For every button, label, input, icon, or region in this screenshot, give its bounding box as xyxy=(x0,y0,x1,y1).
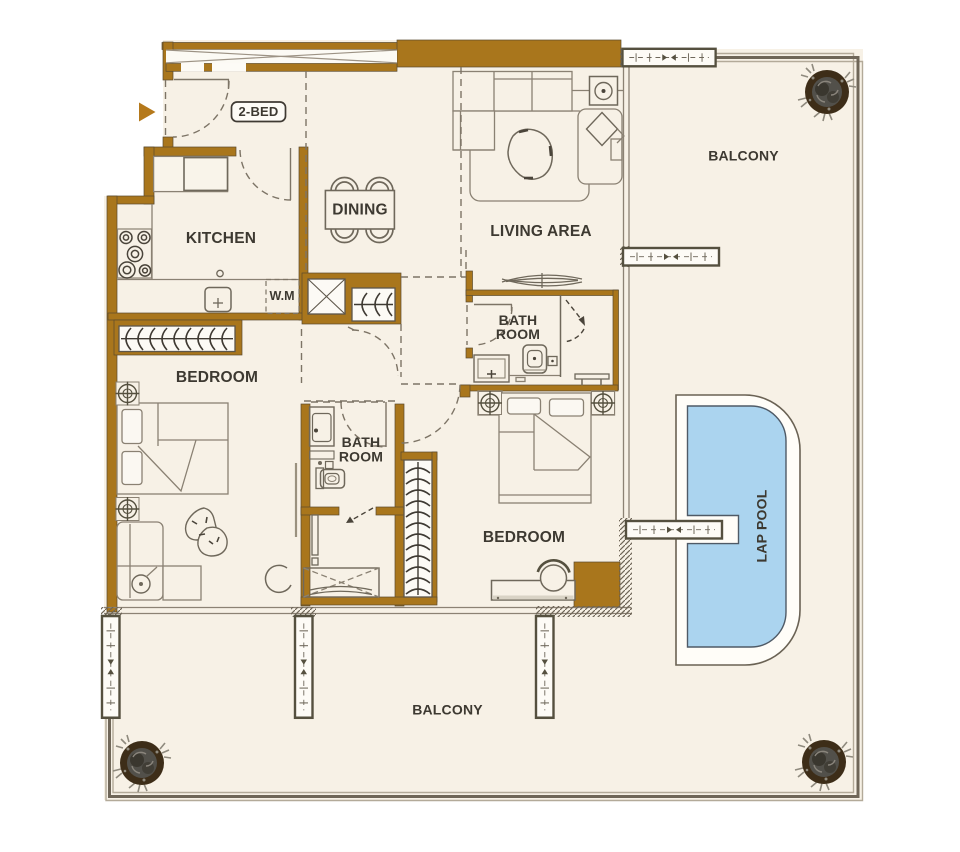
svg-text:KITCHEN: KITCHEN xyxy=(186,230,256,247)
svg-text:BEDROOM: BEDROOM xyxy=(176,369,258,386)
svg-text:BALCONY: BALCONY xyxy=(708,148,779,164)
svg-text:ROOM: ROOM xyxy=(496,326,540,342)
svg-text:BALCONY: BALCONY xyxy=(412,702,483,718)
svg-text:LAP POOL: LAP POOL xyxy=(754,489,770,562)
svg-text:LIVING AREA: LIVING AREA xyxy=(490,223,592,240)
svg-text:DINING: DINING xyxy=(332,202,387,219)
svg-text:2-BED: 2-BED xyxy=(238,104,278,119)
svg-text:BEDROOM: BEDROOM xyxy=(483,529,565,546)
svg-text:W.M: W.M xyxy=(270,289,295,303)
svg-text:ROOM: ROOM xyxy=(339,449,383,465)
